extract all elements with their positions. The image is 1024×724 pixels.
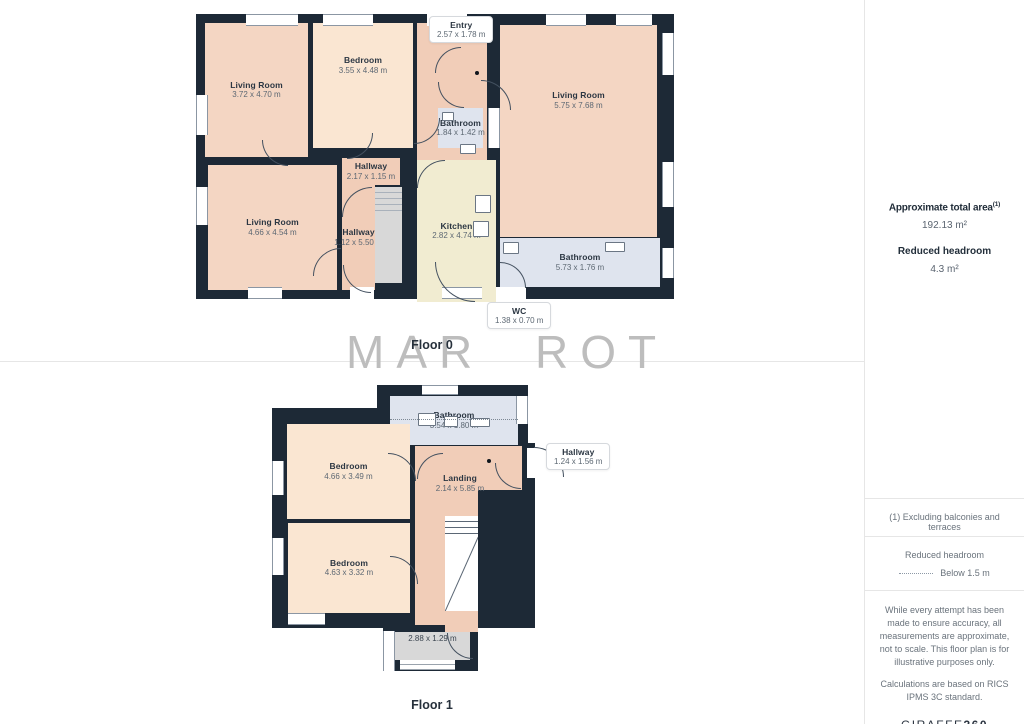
disclaimer-text-2: Calculations are based on RICS IPMS 3C s…	[875, 678, 1014, 704]
legend-row: Below 1.5 m	[875, 568, 1014, 578]
reduced-headroom-label: Reduced headroom	[865, 246, 1024, 257]
stairs-floor1	[445, 516, 478, 611]
reduced-headroom-value: 4.3 m²	[865, 264, 1024, 275]
bathroom-kitchen-fixture	[503, 242, 519, 254]
callout-hallway: Hallway 1.24 x 1.56 m	[546, 443, 610, 470]
door-arc	[262, 140, 288, 166]
total-area-value: 192.13 m²	[865, 220, 1024, 231]
window	[662, 162, 674, 207]
bathroom-kitchen-fixture	[444, 416, 458, 427]
window	[272, 461, 284, 495]
window	[422, 385, 458, 395]
marker-dot	[487, 459, 491, 463]
porch-steps	[400, 660, 455, 670]
window	[662, 248, 674, 278]
room-label: Living Room 4.66 x 4.54 m	[246, 217, 299, 238]
footnote-box: (1) Excluding balconies and terraces	[865, 498, 1024, 536]
room-label: Bedroom 3.55 x 4.48 m	[339, 55, 387, 76]
floor0-label: Floor 0	[0, 338, 864, 352]
reduced-headroom-line	[390, 419, 518, 420]
room-bedroom: Bedroom 3.55 x 4.48 m	[313, 23, 413, 148]
callout-entry: Entry 2.57 x 1.78 m	[429, 16, 493, 43]
window	[246, 14, 298, 26]
callout-wc: WC 1.38 x 0.70 m	[487, 302, 551, 329]
legend-box: Reduced headroom Below 1.5 m	[865, 536, 1024, 590]
bathroom-kitchen-fixture	[475, 195, 491, 213]
window	[616, 14, 652, 26]
window	[196, 95, 208, 135]
window	[272, 538, 284, 575]
stair-treads	[375, 187, 402, 211]
floorplan-page: MAR ROT Living Room 3.72 x 4.70 m Bedroo…	[0, 0, 1024, 724]
room-hallway-top: Hallway 2.17 x 1.15 m	[342, 158, 400, 185]
floor1-label: Floor 1	[0, 698, 864, 712]
bathroom-kitchen-fixture	[473, 221, 489, 237]
window	[248, 287, 282, 299]
door-arc	[347, 133, 373, 159]
disclaimer-text-1: While every attempt has been made to ens…	[875, 604, 1014, 669]
room-living-room-top-left: Living Room 3.72 x 4.70 m	[205, 23, 308, 157]
room-label: Living Room 3.72 x 4.70 m	[230, 80, 283, 101]
window	[323, 14, 373, 26]
floor1-plan: Bathroom 3.54 x 1.80 m Bedroom 4.66 x 3.…	[272, 383, 597, 673]
floor0-plan: Living Room 3.72 x 4.70 m Bedroom 3.55 x…	[196, 14, 674, 299]
bathroom-kitchen-fixture	[460, 144, 476, 154]
landing-connector	[445, 611, 478, 632]
legend-label: Reduced headroom	[875, 550, 1014, 560]
bathroom-kitchen-fixture	[442, 112, 454, 121]
legend-value: Below 1.5 m	[940, 568, 990, 578]
room-label: Hallway 2.17 x 1.15 m	[347, 161, 395, 182]
window	[662, 33, 674, 75]
porch-dims-label: 2.88 x 1.29 m	[395, 634, 470, 644]
marker-dot	[475, 71, 479, 75]
stair-diagonal	[445, 536, 478, 611]
giraffe360-logo: GIRAFFE360	[875, 717, 1014, 724]
stair-treads	[445, 516, 478, 538]
total-area-label: Approximate total area(1)	[865, 201, 1024, 213]
window	[288, 613, 325, 625]
window	[196, 187, 208, 225]
room-label: Bedroom 4.63 x 3.32 m	[325, 558, 373, 579]
area-stats: Approximate total area(1) 192.13 m² Redu…	[865, 201, 1024, 275]
room-label: Living Room 5.75 x 7.68 m	[552, 90, 605, 111]
room-label: Bathroom 5.73 x 1.76 m	[556, 252, 604, 273]
window	[383, 631, 395, 671]
room-label: Bedroom 4.66 x 3.49 m	[324, 461, 372, 482]
watermark: MAR ROT	[346, 329, 668, 375]
stairs-floor0	[375, 187, 402, 283]
dotted-line-sample	[899, 573, 933, 574]
room-living-room-right: Living Room 5.75 x 7.68 m	[500, 25, 657, 237]
footnote-marker: (1)	[993, 201, 1000, 208]
window	[488, 108, 500, 148]
sidebar: Approximate total area(1) 192.13 m² Redu…	[864, 0, 1024, 724]
window	[546, 14, 586, 26]
wc-nook	[496, 287, 526, 299]
disclaimer-box: While every attempt has been made to ens…	[865, 590, 1024, 724]
bathroom-kitchen-fixture	[605, 242, 625, 252]
